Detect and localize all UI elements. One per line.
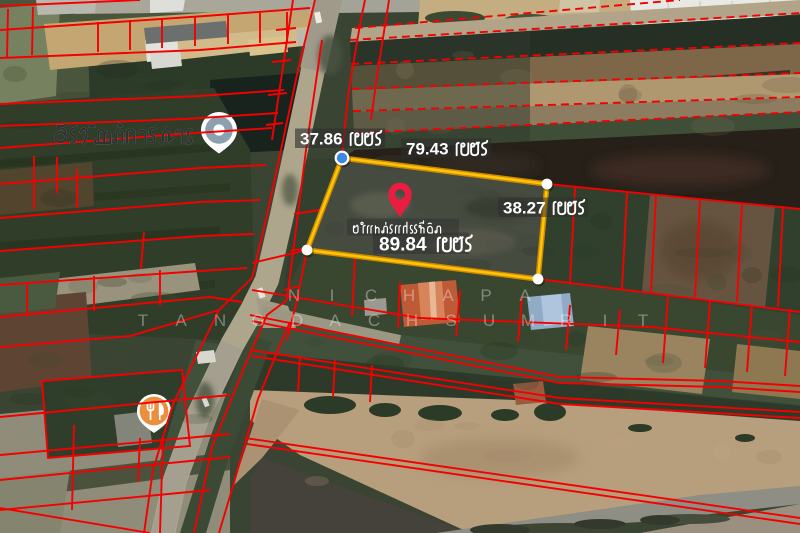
svg-text:C: C: [368, 311, 380, 330]
svg-text:A: A: [442, 286, 454, 305]
svg-text:A: A: [329, 311, 341, 330]
svg-text:D: D: [291, 311, 303, 330]
svg-text:H: H: [406, 311, 418, 330]
svg-text:A: A: [175, 311, 187, 330]
svg-text:R: R: [560, 311, 572, 330]
svg-text:H: H: [403, 286, 415, 305]
svg-text:U: U: [483, 311, 495, 330]
svg-text:38.27: 38.27: [503, 199, 546, 218]
svg-text:37.86: 37.86: [300, 130, 343, 149]
svg-text:N: N: [214, 311, 226, 330]
svg-text:79.43: 79.43: [406, 140, 449, 159]
svg-text:T: T: [638, 311, 648, 330]
svg-text:I: I: [330, 286, 335, 305]
svg-text:M: M: [521, 311, 535, 330]
svg-text:89.84: 89.84: [379, 235, 427, 256]
svg-text:A: A: [519, 286, 531, 305]
svg-text:C: C: [365, 286, 377, 305]
svg-text:I: I: [603, 311, 608, 330]
svg-text:N: N: [288, 286, 300, 305]
svg-text:S: S: [445, 311, 456, 330]
svg-text:G: G: [251, 311, 264, 330]
svg-text:T: T: [138, 311, 148, 330]
svg-text:P: P: [480, 286, 491, 305]
